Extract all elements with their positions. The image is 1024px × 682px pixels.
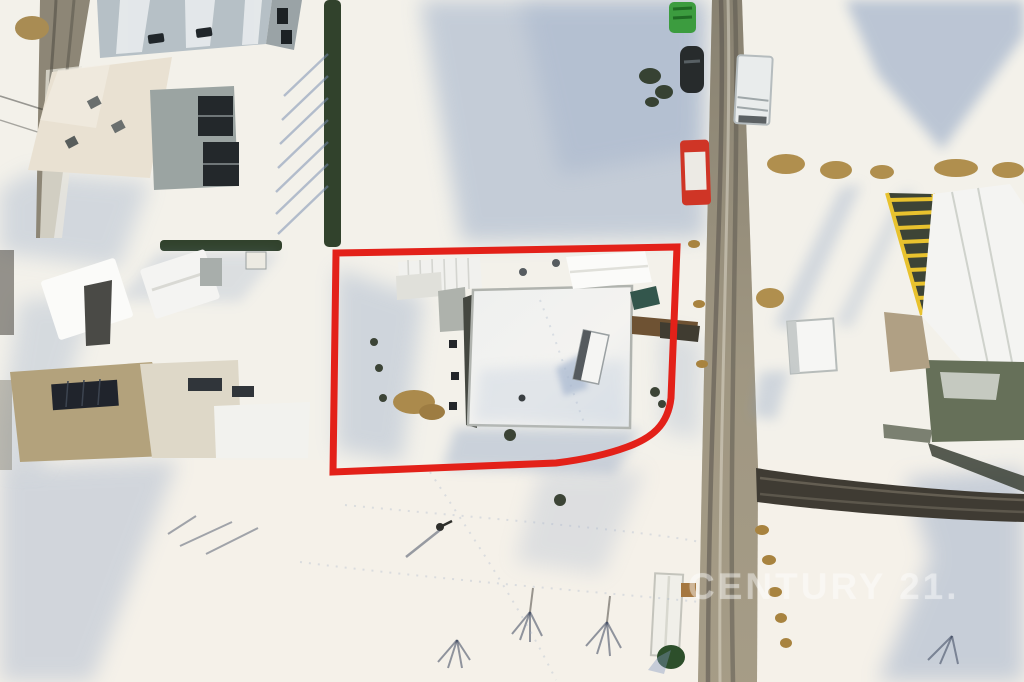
dark-car (680, 46, 704, 93)
white-flat-annex (214, 402, 310, 458)
skylight (277, 8, 288, 24)
small-white-box (246, 252, 266, 269)
dark-clutter (84, 280, 112, 346)
golden-bush (15, 16, 49, 40)
roof-tank (519, 268, 527, 276)
fence-left-edge (0, 250, 14, 335)
fence-left-edge (0, 380, 12, 470)
window-slot (188, 378, 222, 391)
gray-shed (200, 258, 222, 286)
awning (396, 272, 442, 300)
shadow-east-of-plot (660, 330, 702, 440)
solar-panel-array (51, 380, 119, 411)
aerial-photo: CENTURY 21. (0, 0, 1024, 682)
white-trailer (734, 55, 773, 125)
roof-hatch (519, 395, 526, 402)
snowy-truck-roof (684, 152, 706, 191)
machine-slat (673, 8, 692, 9)
annex-roof-gray-green (925, 360, 1024, 442)
window-slot (232, 386, 254, 397)
trailer-by-hut (681, 583, 696, 597)
golden-bush-in-plot (419, 404, 445, 420)
machine-slat (673, 17, 692, 18)
annex-gray (438, 287, 467, 332)
roof-tank (552, 259, 560, 267)
car-windshield (684, 61, 700, 62)
red-truck (680, 139, 711, 205)
aerial-photo-canvas (0, 0, 1024, 682)
white-shed (787, 318, 837, 373)
skylight (281, 30, 292, 44)
hedge-vertical (324, 0, 341, 247)
hedge-horizontal (160, 240, 282, 251)
annex-snow-patch (940, 372, 1000, 400)
